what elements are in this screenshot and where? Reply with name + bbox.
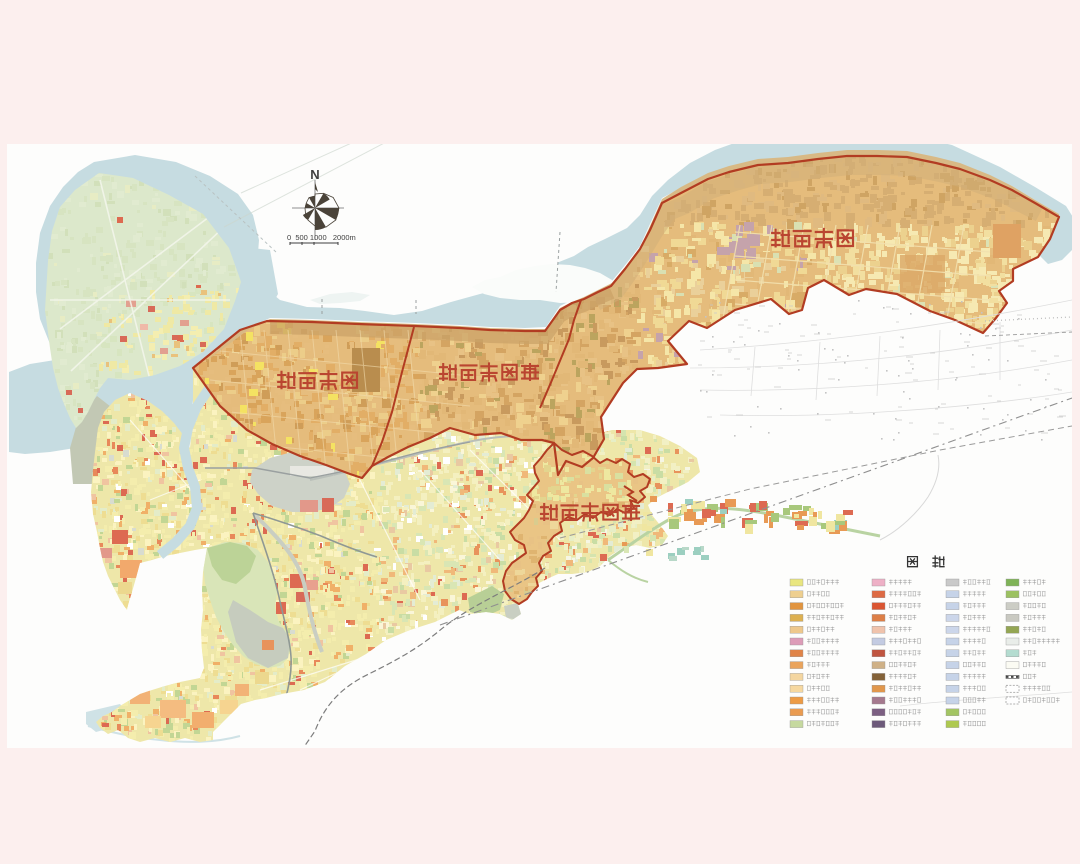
svg-text:0 500 1000 2000m: 0 500 1000 2000m (287, 233, 356, 242)
svg-text:N: N (310, 167, 319, 182)
